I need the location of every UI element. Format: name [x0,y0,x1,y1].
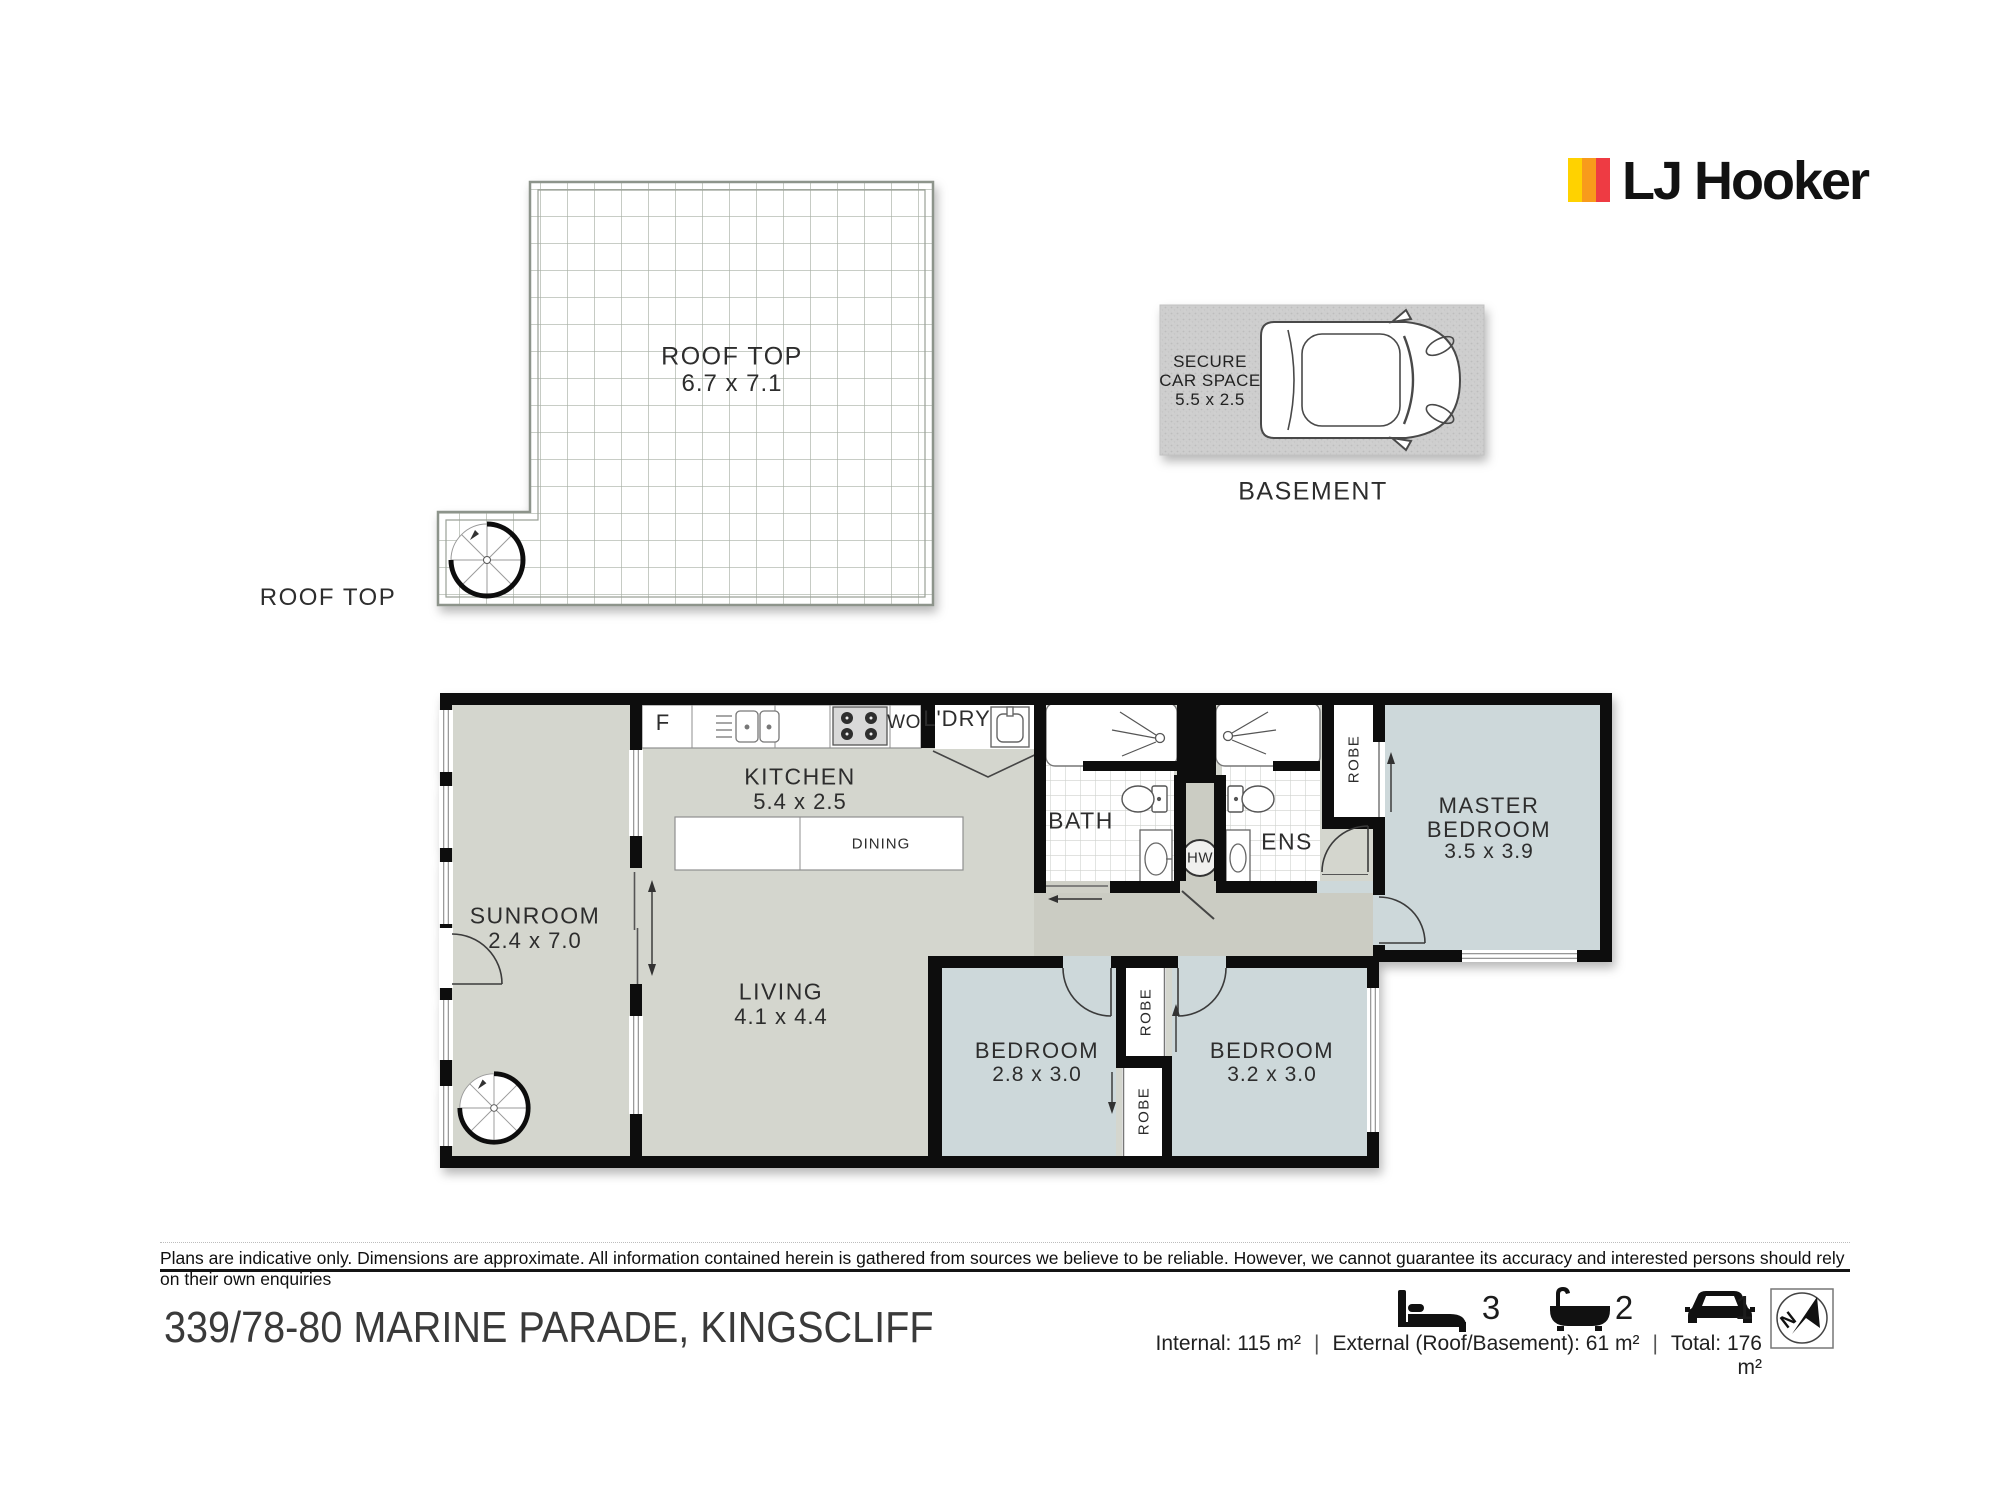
basement-label: BASEMENT [1238,478,1388,507]
hot-water-label: HW [1187,850,1213,867]
beds-count: 3 [1482,1289,1500,1327]
logo-stripe-orange [1582,158,1596,202]
logo-brand-text: LJ Hooker [1622,150,1868,212]
main-floor-plan [439,693,1612,1168]
robe-top-label: ROBE [1138,988,1155,1037]
area-total: Total: 176 m² [1671,1332,1762,1379]
property-address: 339/78-80 MARINE PARADE, KINGSCLIFF [164,1303,934,1353]
carspace-dims: 5.5 x 2.5 [1175,390,1245,410]
bedroom2-dims: 2.8 x 3.0 [992,1063,1082,1087]
island-bench [675,817,963,870]
rooftop-dims: 6.7 x 7.1 [681,370,782,398]
ens-shower [1216,703,1320,766]
laundry-tub-icon [991,707,1029,747]
master-dims: 3.5 x 3.9 [1444,840,1534,864]
rooftop-side-label: ROOF TOP [260,584,396,612]
master-robe-label: ROBE [1346,735,1363,784]
sunroom-dims: 2.4 x 7.0 [488,928,581,954]
robe-bottom-label: ROBE [1136,1087,1153,1136]
bath-toilet-icon [1122,786,1167,812]
dining-label: DINING [852,836,911,853]
master-label-line1: MASTER [1439,793,1540,819]
area-internal: Internal: 115 m² [1156,1332,1302,1355]
sunroom-label: SUNROOM [470,903,601,930]
area-summary: Internal: 115 m²|External (Roof/Basement… [1130,1332,1762,1380]
area-separator: | [1639,1332,1670,1355]
area-external: External (Roof/Basement): 61 m² [1333,1332,1640,1355]
kitchen-counter [642,705,921,748]
roof-spiral-stair-icon [451,524,523,596]
bedroom2-label: BEDROOM [975,1038,1099,1064]
baths-count: 2 [1615,1289,1633,1327]
bath-vanity-icon [1140,830,1172,888]
cars-count: 1 [1735,1289,1753,1327]
logo-stripe-red [1596,158,1610,202]
wall-oven-label: WO [887,712,921,734]
laundry-label: L'DRY [923,706,991,732]
logo-stripe-yellow [1568,158,1582,202]
rooftop-room-label: ROOF TOP [661,343,803,372]
bath-icon [1550,1287,1610,1331]
ens-toilet-icon [1228,786,1274,812]
living-dims: 4.1 x 4.4 [734,1004,827,1030]
fridge-label: F [656,710,670,736]
footer-rule [160,1269,1850,1272]
carspace-label-line1: SECURE [1173,352,1247,372]
area-separator: | [1301,1332,1332,1355]
bedroom3-dims: 3.2 x 3.0 [1227,1063,1317,1087]
bedroom3-label: BEDROOM [1210,1038,1334,1064]
bed-icon [1398,1290,1466,1332]
floorplan-page: LJ Hooker ROOF TOP 6.7 x 7.1 ROOF TOP SE… [0,0,2000,1500]
sunroom-slider [629,868,656,984]
car-top-view-icon [1261,310,1460,450]
living-label: LIVING [739,979,823,1006]
dotted-divider [160,1242,1850,1243]
cooktop-icon [833,707,887,745]
sunroom-spiral-stair-icon [460,1074,528,1142]
kitchen-label: KITCHEN [744,764,855,791]
bath-shower [1046,703,1177,766]
ens-label: ENS [1261,829,1313,856]
carspace-label-line2: CAR SPACE [1159,371,1261,391]
kitchen-dims: 5.4 x 2.5 [753,789,846,815]
bath-label: BATH [1048,808,1114,835]
